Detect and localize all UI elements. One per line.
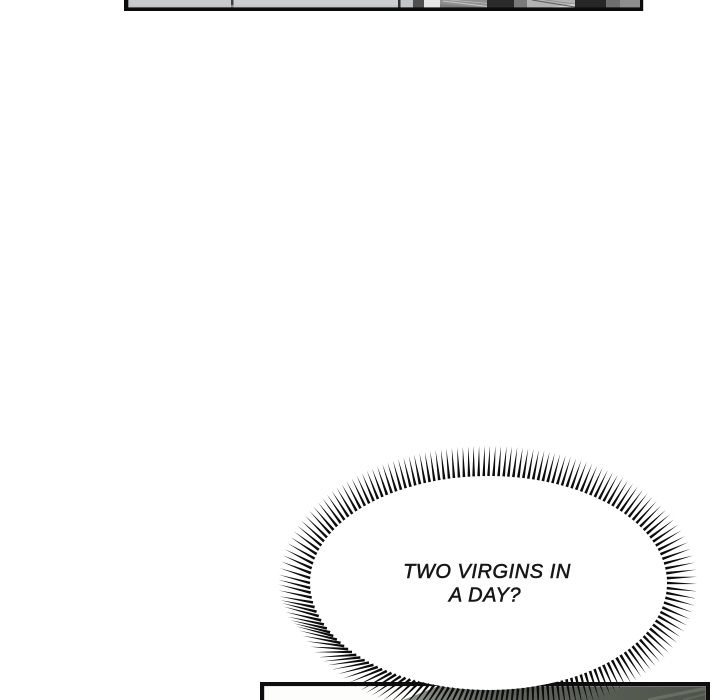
svg-text:TWO VIRGINS IN: TWO VIRGINS IN	[403, 561, 571, 583]
svg-text:A DAY?: A DAY?	[448, 585, 522, 607]
